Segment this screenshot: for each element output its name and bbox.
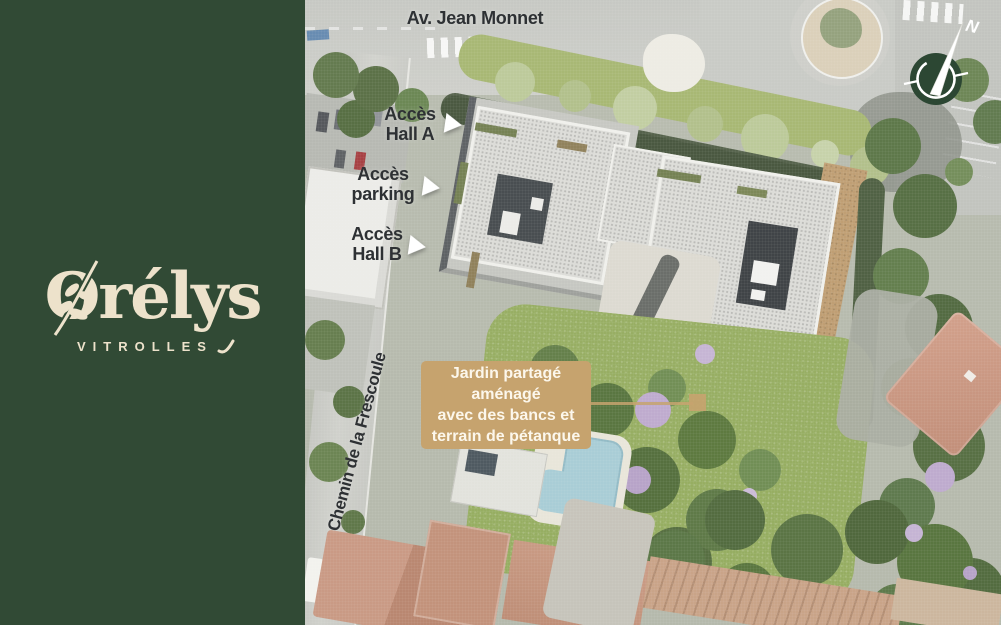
tree-cluster-bottom: [705, 490, 765, 550]
rooftop-structure: [487, 174, 553, 245]
olive-branch-icon: [41, 253, 107, 339]
car-blue: [307, 29, 330, 41]
rooftop-skylight: [530, 197, 544, 211]
access-hall-b-line2: Hall B: [345, 244, 409, 264]
house-roof: [413, 520, 511, 625]
garden-note-marker: [689, 394, 706, 411]
access-parking-line2: parking: [345, 184, 421, 204]
rooftop-skylight: [499, 211, 521, 236]
garden-note-line: avec des bancs et: [421, 405, 591, 426]
street-label-av-jean-monnet: Av. Jean Monnet: [365, 8, 585, 28]
access-hall-a-arrow-icon: [444, 113, 464, 135]
access-hall-a-line2: Hall A: [377, 124, 443, 144]
compass-icon: N: [890, 14, 1000, 110]
plaza: [643, 34, 705, 92]
access-hall-b-arrow-icon: [408, 235, 428, 257]
compass-n-label: N: [964, 16, 981, 38]
access-hall-a-label: Accès Hall A: [377, 104, 443, 145]
flowering-trees: [635, 392, 671, 428]
brand-city: VITROLLES: [70, 339, 213, 354]
access-hall-a-line1: Accès: [377, 104, 443, 124]
roundabout-greenery: [820, 8, 862, 48]
access-hall-b-line1: Accès: [345, 224, 409, 244]
garden-note-line: aménagé: [421, 384, 591, 405]
shed-roof: [890, 578, 1001, 625]
brand-logo: Orélys VITROLLES: [45, 265, 261, 355]
access-parking-label: Accès parking: [345, 164, 421, 205]
tree-cluster: [313, 52, 359, 98]
brand-city-row: VITROLLES: [45, 339, 261, 355]
access-parking-arrow-icon: [422, 176, 442, 198]
rooftop-skylight: [750, 260, 779, 286]
garden-note-line: Jardin partagé: [421, 363, 591, 384]
garden-note-callout: Jardin partagé aménagé avec des bancs et…: [421, 361, 591, 449]
rooftop-skylight: [750, 289, 765, 301]
tree-cluster: [865, 118, 921, 174]
solar-panel: [465, 449, 498, 476]
leaf-flourish-icon: [217, 339, 235, 355]
flowering-trees: [925, 462, 955, 492]
light-trees: [495, 62, 535, 102]
tree-cluster: [305, 320, 345, 360]
access-hall-b-label: Accès Hall B: [345, 224, 409, 265]
garden-note-line: terrain de pétanque: [421, 426, 591, 447]
access-parking-line1: Accès: [345, 164, 421, 184]
marketing-visual: Av. Jean Monnet Accès Hall A Accès parki…: [0, 0, 1001, 625]
brand-panel: Orélys VITROLLES: [0, 0, 305, 625]
pool-house-roof: [450, 439, 548, 517]
garden-note-connector: [591, 402, 693, 405]
aerial-map: Av. Jean Monnet Accès Hall A Accès parki…: [305, 0, 1001, 625]
